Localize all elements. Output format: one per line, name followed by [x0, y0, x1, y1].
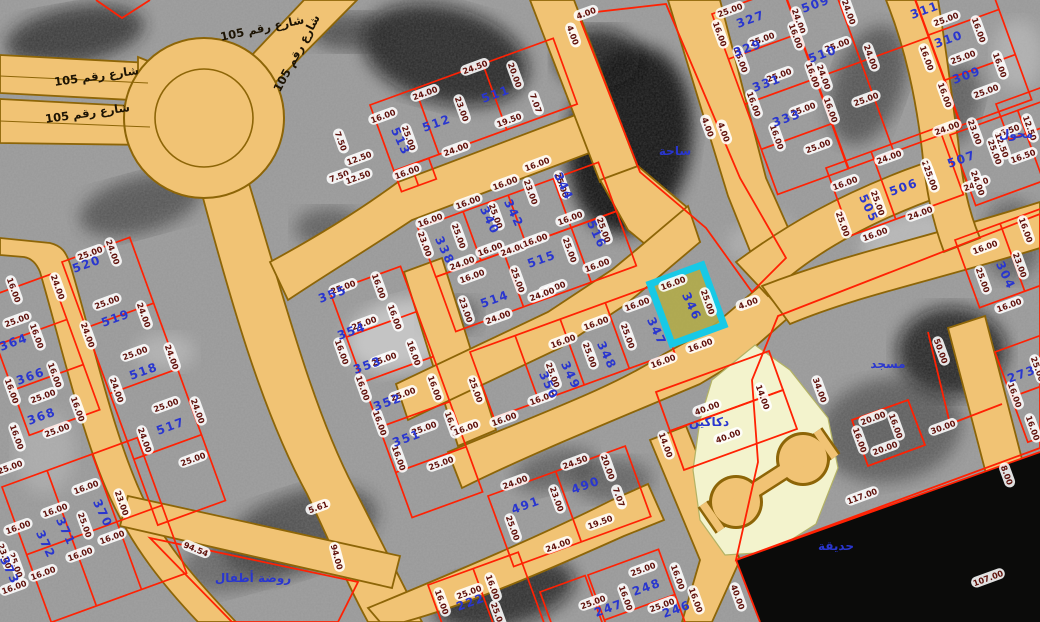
map-canvas[interactable]: 25.0024.0024.0025.0024.0024.0025.0024.00… [0, 0, 1040, 622]
landuse-label: مسجد [870, 357, 905, 371]
landuse-label: دكاكين [689, 415, 729, 429]
landuse-label: ساحة [659, 144, 691, 158]
landuse-label: حديقة [818, 539, 854, 553]
landuse-label: روضة أطفال [215, 570, 291, 586]
map-viewport[interactable]: 25.0024.0024.0025.0024.0024.0025.0024.00… [0, 0, 1040, 622]
landuse-label: محول [999, 127, 1033, 142]
roundabout-island [155, 69, 253, 167]
